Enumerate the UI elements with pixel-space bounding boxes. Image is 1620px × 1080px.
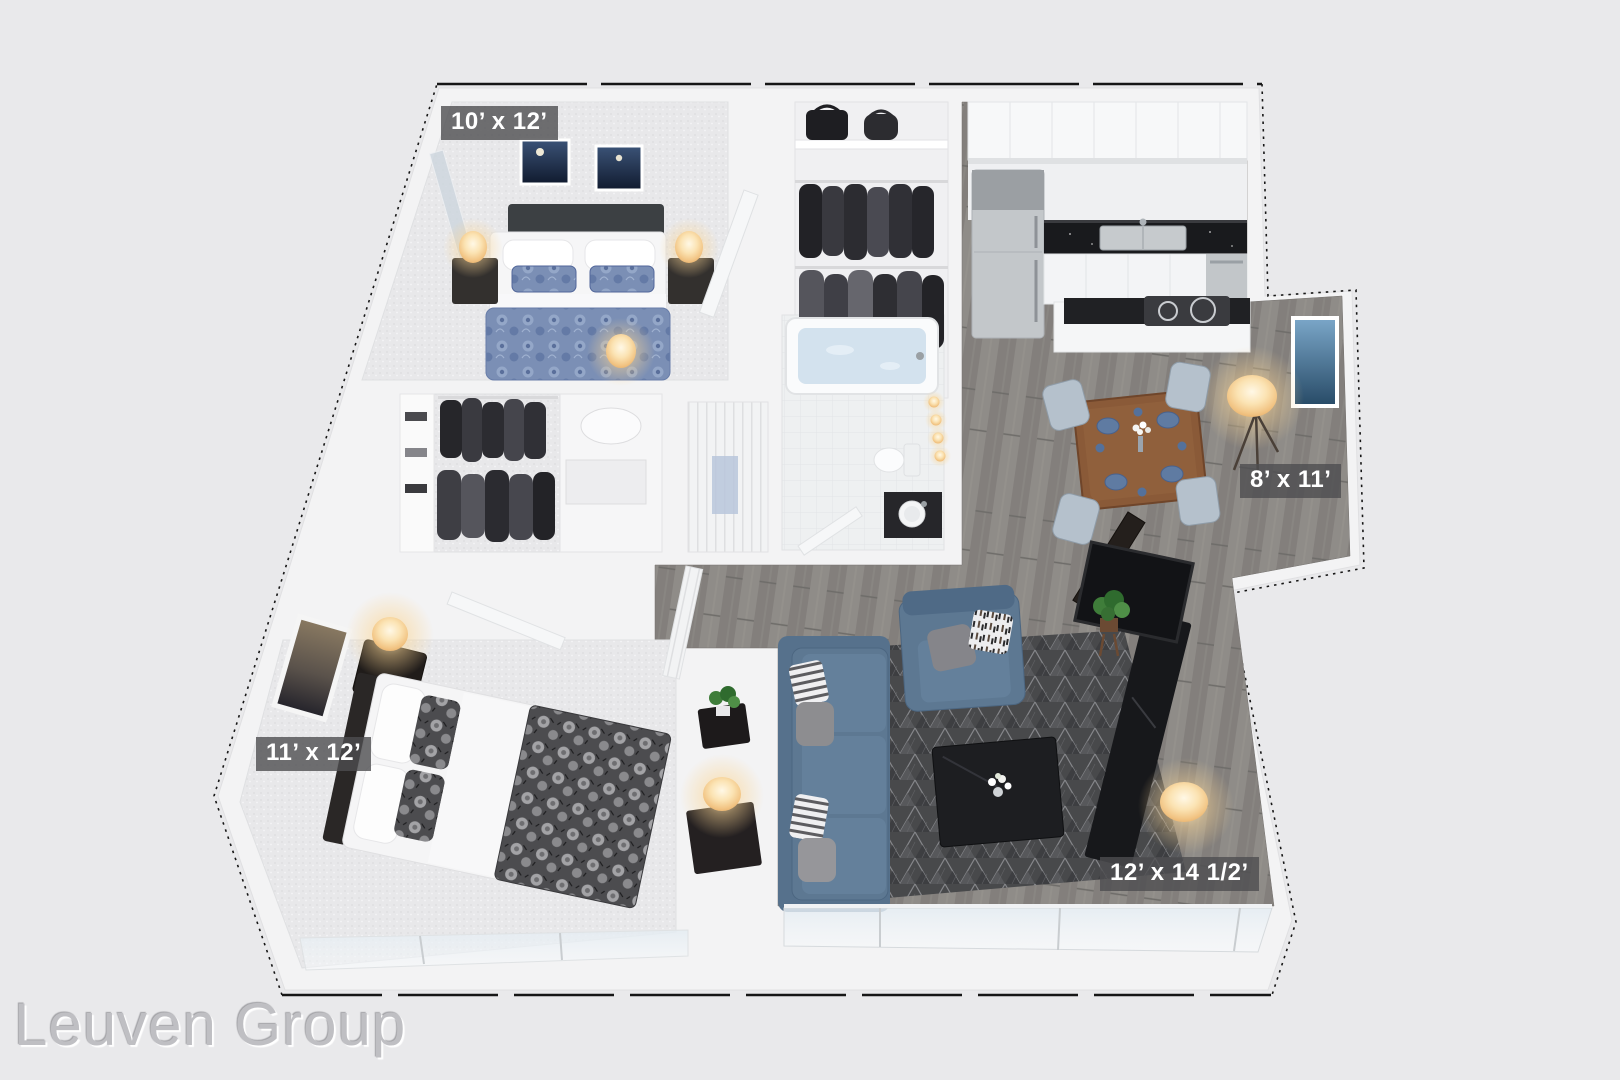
table-lamp-icon xyxy=(606,334,636,368)
round-table xyxy=(581,408,641,444)
bag-icon xyxy=(806,110,848,140)
table-lamp-icon xyxy=(459,231,487,263)
floorplan-render: 10’ x 12’ 8’ x 11’ 11’ x 12’ 12’ x 14 1/… xyxy=(0,0,1620,1080)
hanging-clothes xyxy=(799,184,934,260)
bag-icon xyxy=(864,114,898,140)
wall-art-icon xyxy=(596,146,642,190)
company-watermark: Leuven Group xyxy=(14,990,406,1059)
table-lamp-icon xyxy=(675,231,703,263)
room-dimension-label-bedroom-top: 10’ x 12’ xyxy=(441,106,558,140)
table-lamp-icon xyxy=(372,617,408,651)
entry-closet xyxy=(795,106,948,352)
table-lamp-icon xyxy=(703,777,741,811)
sofa xyxy=(778,636,890,912)
room-dimension-label-living: 12’ x 14 1/2’ xyxy=(1100,857,1259,891)
floorplan-graphic xyxy=(0,0,1620,1080)
dining-chair xyxy=(1164,361,1211,413)
wall-art-icon xyxy=(521,140,569,184)
glass-railing xyxy=(784,906,1272,952)
kitchen-peninsula xyxy=(1054,296,1250,352)
room-dimension-label-dining: 8’ x 11’ xyxy=(1240,464,1341,498)
room-dimension-label-bedroom-bottom: 11’ x 12’ xyxy=(256,737,371,771)
cooktop-icon xyxy=(1144,296,1230,326)
vanity-sink xyxy=(884,492,942,538)
floor-lamp-icon xyxy=(1160,782,1208,822)
faucet-icon xyxy=(916,352,924,360)
armchair xyxy=(898,584,1026,712)
dining-chair xyxy=(1175,475,1221,526)
kitchen xyxy=(968,102,1250,352)
refrigerator xyxy=(972,170,1044,338)
